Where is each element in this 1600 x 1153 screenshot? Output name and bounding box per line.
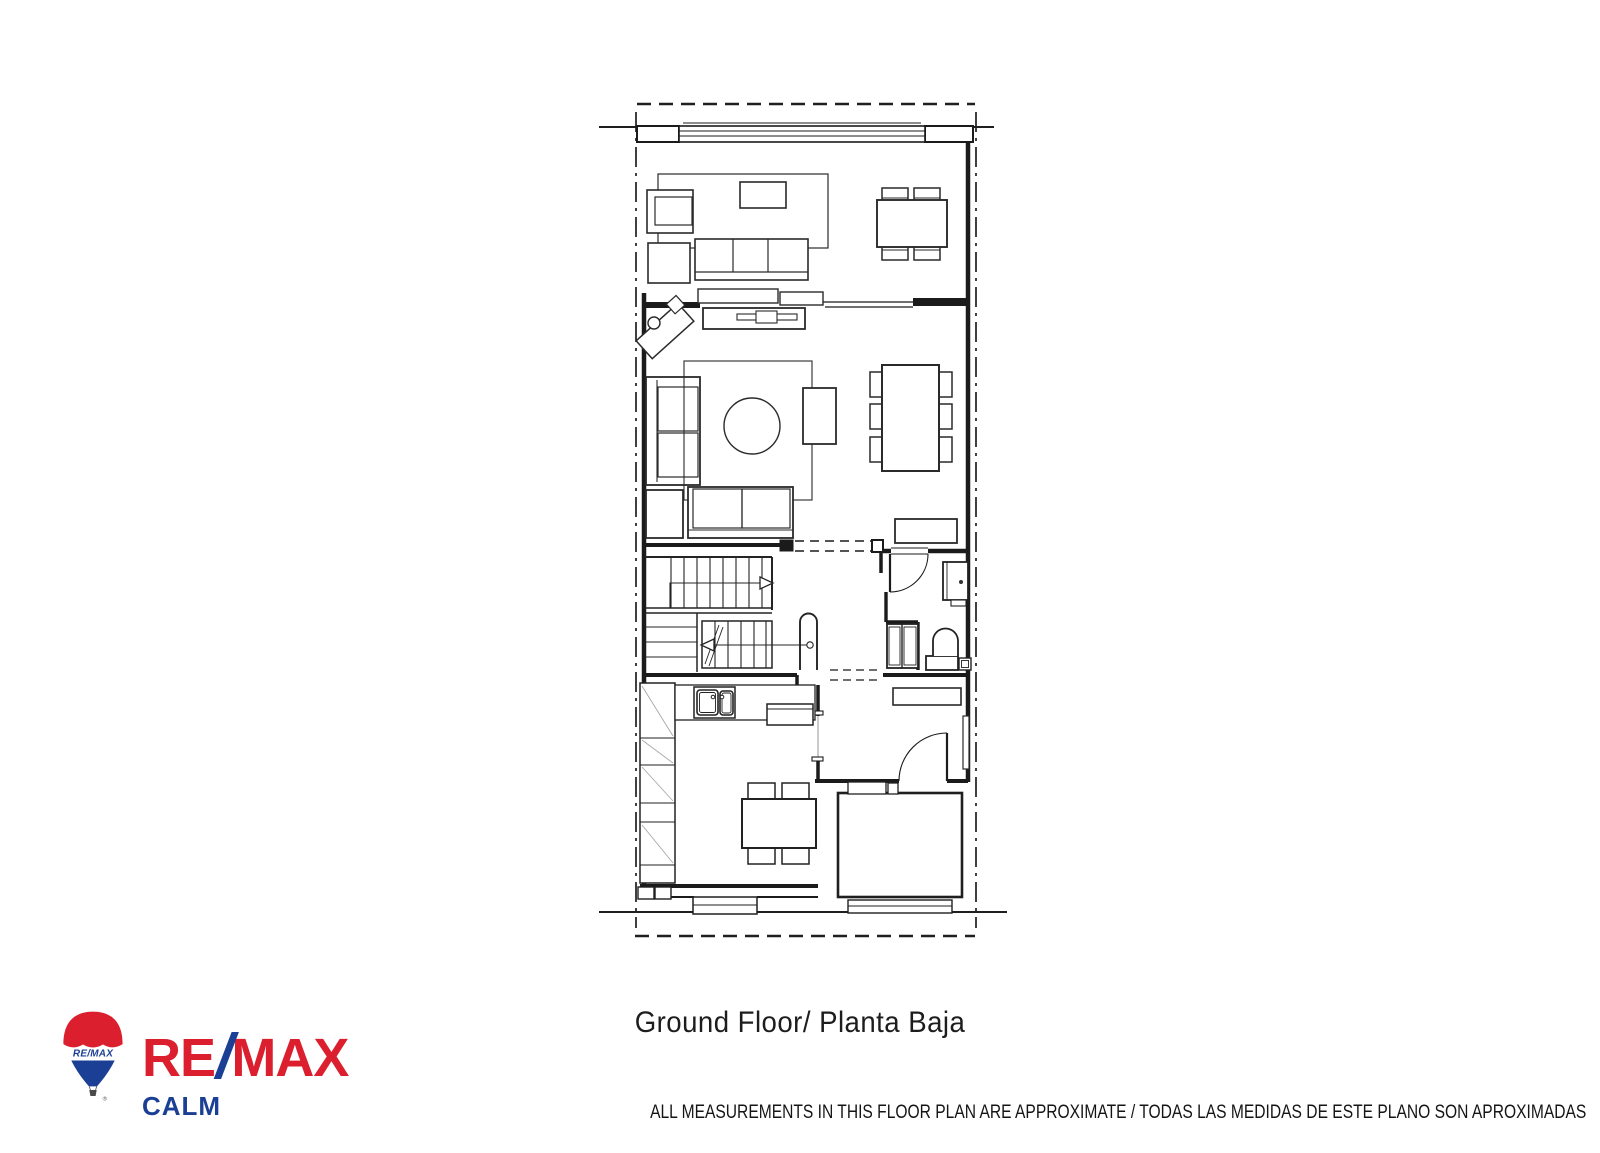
dining-chair (938, 437, 952, 462)
terrace-dining-set (877, 188, 947, 260)
floor-plan-page: Ground Floor/ Planta Baja RE/MAX ® RE/MA… (0, 0, 1600, 1153)
wordmark-re: RE (142, 1028, 215, 1088)
plan-caption: Ground Floor/ Planta Baja (635, 1006, 966, 1040)
porch-outline (838, 793, 962, 897)
living-bench (895, 519, 957, 543)
front-door-swing-arc (899, 733, 947, 781)
stair-arrow-origin (807, 642, 813, 648)
terrace-console (780, 292, 823, 305)
hall-dashed-opening (830, 670, 881, 680)
living-side-table-right (803, 388, 836, 444)
living-room-furniture (631, 295, 957, 543)
terrace-armchair (647, 190, 693, 233)
kitchen-table (742, 799, 816, 848)
remax-logo-text: RE/MAX CALM (142, 1008, 348, 1122)
kitchen-sink (694, 687, 735, 718)
top-wall-pier-left (637, 126, 679, 142)
dining-table (882, 365, 939, 471)
living-sofa-bottom (688, 487, 793, 538)
kitchen-hob (767, 704, 813, 725)
kitchen-chair (748, 783, 775, 799)
bathroom-sink (943, 562, 968, 606)
kitchen-chair (748, 848, 775, 864)
living-dining-set (870, 365, 952, 471)
balloon-envelope-top (63, 1012, 122, 1048)
wall-pier-white (872, 540, 883, 552)
living-stair-dashed-opening (795, 541, 872, 551)
top-wall-pier-right (925, 126, 973, 142)
porch-room (838, 782, 962, 913)
terrace-living-glass-line (823, 302, 913, 307)
balloon-wordmark: RE/MAX (73, 1049, 114, 1060)
toilet (926, 629, 958, 671)
balloon-cords (89, 1086, 96, 1090)
stair-landing-lines (645, 608, 772, 613)
wordmark-max: MAX (231, 1028, 348, 1088)
living-rug (684, 361, 812, 500)
terrace-furniture (647, 174, 947, 305)
remax-wordmark: RE/MAX (142, 1024, 348, 1087)
kitchen-fixtures (640, 683, 816, 883)
porch-step-1 (848, 782, 886, 794)
terrace-sofa (695, 239, 823, 305)
hall-radiator (963, 716, 969, 769)
porch-step-2 (888, 783, 898, 794)
hall-cabinet (893, 688, 961, 705)
living-sofa-left (646, 377, 700, 485)
dining-chair (938, 404, 952, 429)
bottom-windows (638, 887, 757, 914)
kitchen-wall-end-square-2 (655, 887, 671, 899)
living-side-table-left (646, 490, 683, 538)
disclaimer-label: ALL MEASUREMENTS IN THIS FLOOR PLAN ARE … (650, 1101, 1586, 1123)
balloon-basket (89, 1090, 96, 1096)
terrace-coffee-table (740, 182, 786, 208)
remax-logo: RE/MAX ® RE/MAX CALM (56, 1008, 348, 1122)
kitchen-wall-end-square-1 (638, 887, 654, 899)
dining-chair (938, 372, 952, 397)
disclaimer-text: ALL MEASUREMENTS IN THIS FLOOR PLAN ARE … (650, 1101, 1586, 1124)
floor-plan-drawing (0, 0, 1600, 1153)
terrace-window (679, 123, 925, 142)
staircase (645, 557, 817, 672)
registered-trademark: ® (103, 1095, 108, 1102)
bathroom-door-swing-arc (890, 554, 928, 592)
floor-drain (959, 658, 971, 670)
terrace-dining-table (877, 200, 947, 247)
wordmark-slash: / (216, 1026, 232, 1089)
kitchen-table-set (742, 783, 816, 864)
kitchen-chair (782, 848, 809, 864)
stair-winders (645, 613, 697, 672)
stair-down-arrowhead (701, 639, 714, 651)
bathroom-fixtures (887, 562, 971, 670)
terrace-side-chair (648, 243, 690, 283)
kitchen-counter-left (640, 683, 675, 883)
terrace-sofa-base (698, 289, 778, 303)
round-table (724, 398, 780, 454)
front-door (899, 733, 947, 781)
wall-pier-dark (780, 540, 793, 551)
remax-balloon-icon: RE/MAX ® (56, 1008, 130, 1104)
kitchen-chair (782, 783, 809, 799)
entrance-hall-fixtures (893, 688, 969, 769)
bathroom-door (890, 548, 928, 592)
lamp-icon (648, 317, 660, 329)
bathroom-cabinet (887, 624, 918, 668)
remax-office-name: CALM (142, 1091, 348, 1122)
tv-console (703, 308, 805, 329)
